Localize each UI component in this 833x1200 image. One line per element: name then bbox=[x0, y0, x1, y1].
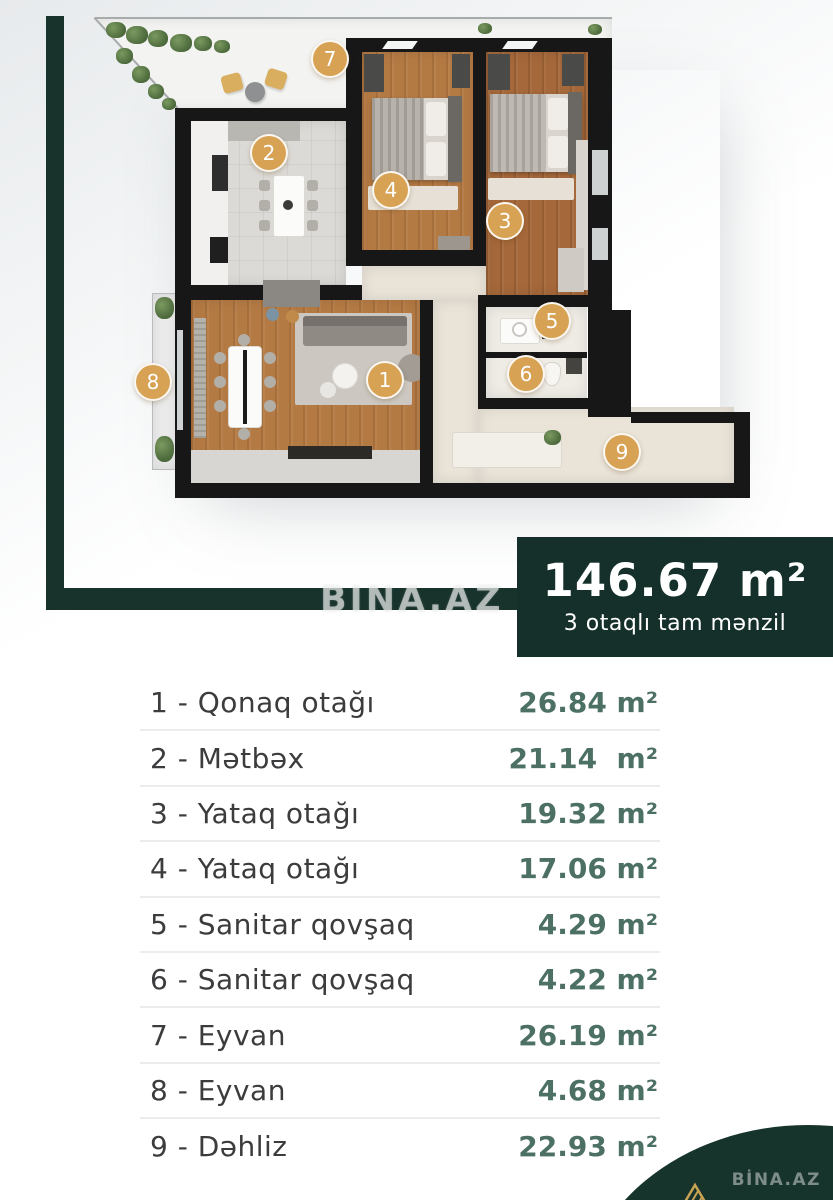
room-marker-number: 6 bbox=[520, 362, 533, 386]
wall bbox=[420, 300, 433, 483]
chair bbox=[264, 376, 276, 388]
table-row: 1 - Qonaq otağı 26.84 m² bbox=[140, 676, 660, 731]
plant bbox=[544, 430, 561, 445]
wall bbox=[191, 108, 362, 121]
room-area: 22.93 m² bbox=[518, 1130, 658, 1163]
room-marker-number: 2 bbox=[263, 141, 276, 165]
room-area: 4.68 m² bbox=[538, 1074, 658, 1107]
curtain bbox=[488, 54, 510, 90]
plant bbox=[132, 66, 150, 83]
room-area: 26.19 m² bbox=[518, 1019, 658, 1052]
window bbox=[592, 228, 608, 260]
chair bbox=[307, 220, 318, 231]
plant bbox=[162, 98, 176, 110]
table-bowl bbox=[283, 200, 293, 210]
room-marker: 6 bbox=[507, 355, 545, 393]
wall bbox=[191, 285, 263, 300]
stool bbox=[266, 308, 279, 321]
coffee-table bbox=[320, 382, 336, 398]
plant bbox=[126, 26, 148, 44]
room-label: 3 - Yataq otağı bbox=[150, 797, 359, 830]
chair bbox=[214, 376, 226, 388]
room-area: 17.06 m² bbox=[518, 852, 658, 885]
room-marker: 4 bbox=[372, 171, 410, 209]
wall bbox=[346, 250, 486, 266]
chair bbox=[214, 400, 226, 412]
plant bbox=[148, 84, 164, 99]
hallway bbox=[362, 266, 486, 300]
room-label: 5 - Sanitar qovşaq bbox=[150, 908, 415, 941]
room-marker-number: 9 bbox=[616, 440, 629, 464]
plant bbox=[148, 30, 168, 47]
wall bbox=[175, 483, 750, 498]
chair bbox=[259, 220, 270, 231]
chair bbox=[259, 200, 270, 211]
table-row: 2 - Mətbəx 21.14 m² bbox=[140, 731, 660, 786]
bed-blanket bbox=[490, 94, 546, 172]
coffee-table bbox=[332, 363, 358, 389]
table-row: 7 - Eyvan 26.19 m² bbox=[140, 1008, 660, 1063]
window bbox=[502, 41, 538, 49]
balcony-door bbox=[177, 330, 183, 430]
room-label: 6 - Sanitar qovşaq bbox=[150, 963, 415, 996]
sofa-back bbox=[303, 316, 407, 326]
room-area: 4.22 m² bbox=[538, 963, 658, 996]
room-marker: 1 bbox=[366, 361, 404, 399]
radiator bbox=[194, 318, 206, 438]
washing-machine bbox=[566, 356, 582, 374]
bina-logo-icon bbox=[674, 1181, 716, 1200]
curtain bbox=[562, 54, 584, 86]
wall bbox=[486, 352, 587, 358]
room-marker: 3 bbox=[486, 202, 524, 240]
wall bbox=[478, 398, 588, 409]
wall bbox=[175, 108, 191, 498]
wall bbox=[478, 295, 588, 307]
table-row: 8 - Eyvan 4.68 m² bbox=[140, 1064, 660, 1119]
plant bbox=[155, 297, 174, 319]
room-marker-number: 8 bbox=[147, 370, 160, 394]
room-marker-number: 3 bbox=[499, 209, 512, 233]
stool bbox=[286, 310, 299, 323]
room-marker: 9 bbox=[603, 433, 641, 471]
listing-graphic: 1 2 3 4 5 6 7 8 9 BINA.AZ 146.67 m² 3 ot… bbox=[0, 0, 833, 1200]
plant bbox=[194, 36, 212, 51]
chair bbox=[264, 352, 276, 364]
pillow bbox=[548, 136, 568, 168]
room-marker: 8 bbox=[134, 363, 172, 401]
wall bbox=[346, 52, 362, 266]
wall bbox=[631, 412, 745, 423]
wall bbox=[473, 52, 486, 250]
wall bbox=[478, 307, 486, 407]
curtain bbox=[364, 54, 384, 92]
room-marker-number: 5 bbox=[546, 309, 559, 333]
terrace-edge-top bbox=[95, 17, 612, 19]
plant bbox=[106, 22, 126, 38]
table-row: 5 - Sanitar qovşaq 4.29 m² bbox=[140, 898, 660, 953]
tv-console bbox=[288, 446, 372, 459]
plant bbox=[588, 24, 602, 35]
room-label: 9 - Dəhliz bbox=[150, 1130, 288, 1163]
chair bbox=[214, 352, 226, 364]
watermark: BINA.AZ bbox=[320, 580, 504, 620]
brand-logo-text: BİNA.AZ bbox=[732, 1170, 821, 1190]
apartment-type: 3 otaqlı tam mənzil bbox=[564, 611, 786, 636]
chair bbox=[264, 400, 276, 412]
kitchen-island bbox=[263, 280, 320, 307]
window bbox=[592, 150, 608, 195]
dresser bbox=[558, 248, 584, 292]
table-runner bbox=[243, 350, 247, 424]
chair bbox=[259, 180, 270, 191]
room-area: 26.84 m² bbox=[518, 686, 658, 719]
room-area: 21.14 m² bbox=[508, 742, 658, 775]
room-marker-number: 1 bbox=[379, 368, 392, 392]
room-area: 4.29 m² bbox=[538, 908, 658, 941]
plant bbox=[214, 40, 230, 53]
room-marker: 2 bbox=[250, 134, 288, 172]
pillow bbox=[548, 98, 568, 130]
room-area: 19.32 m² bbox=[518, 797, 658, 830]
room-label: 1 - Qonaq otağı bbox=[150, 686, 375, 719]
total-area: 146.67 m² bbox=[543, 558, 808, 603]
plant bbox=[116, 48, 133, 64]
room-marker: 7 bbox=[311, 40, 349, 78]
chair bbox=[238, 428, 250, 440]
terrace-table bbox=[245, 82, 265, 102]
room-marker: 5 bbox=[533, 302, 571, 340]
plant bbox=[478, 23, 492, 34]
pillow bbox=[426, 142, 446, 176]
sink bbox=[512, 322, 527, 337]
rug bbox=[488, 178, 574, 200]
pillow bbox=[426, 102, 446, 136]
table-row: 6 - Sanitar qovşaq 4.22 m² bbox=[140, 953, 660, 1008]
room-label: 4 - Yataq otağı bbox=[150, 852, 359, 885]
wall bbox=[320, 285, 362, 300]
table-row: 9 - Dəhliz 22.93 m² bbox=[140, 1119, 660, 1174]
area-summary-badge: 146.67 m² 3 otaqlı tam mənzil bbox=[517, 537, 833, 657]
room-marker-number: 4 bbox=[385, 178, 398, 202]
headboard bbox=[448, 96, 462, 182]
kitchen-oven bbox=[210, 237, 228, 263]
room-label: 7 - Eyvan bbox=[150, 1019, 286, 1052]
kitchen-fridge bbox=[212, 155, 228, 191]
table-row: 3 - Yataq otağı 19.32 m² bbox=[140, 787, 660, 842]
floor-plan: 1 2 3 4 5 6 7 8 9 bbox=[0, 0, 833, 520]
chair bbox=[307, 180, 318, 191]
plant bbox=[170, 34, 192, 52]
room-marker-number: 7 bbox=[324, 47, 337, 71]
wall bbox=[588, 310, 631, 417]
room-label: 8 - Eyvan bbox=[150, 1074, 286, 1107]
room-list: 1 - Qonaq otağı 26.84 m² 2 - Mətbəx 21.1… bbox=[140, 676, 660, 1175]
chair bbox=[307, 200, 318, 211]
room-label: 2 - Mətbəx bbox=[150, 742, 305, 775]
window bbox=[382, 41, 418, 49]
bed-blanket bbox=[372, 98, 424, 180]
plant bbox=[155, 436, 174, 462]
table-row: 4 - Yataq otağı 17.06 m² bbox=[140, 842, 660, 897]
chair bbox=[238, 334, 250, 346]
dresser bbox=[438, 236, 470, 250]
curtain bbox=[452, 54, 470, 88]
